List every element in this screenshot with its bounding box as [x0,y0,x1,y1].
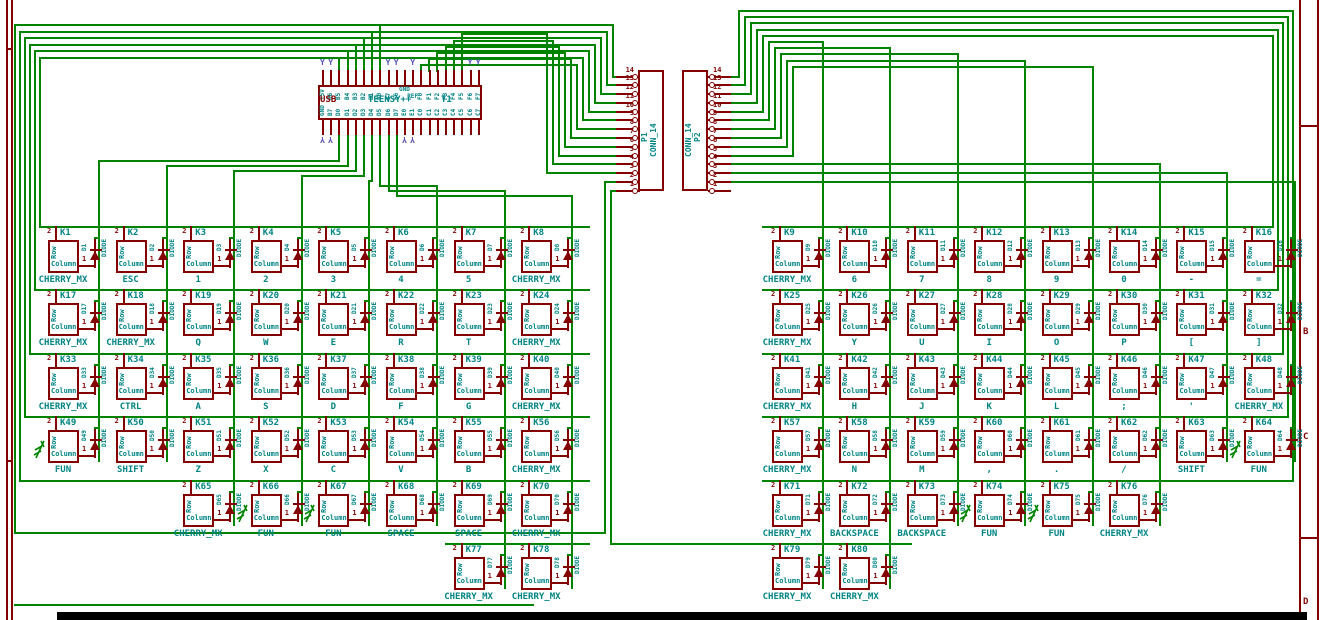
pin-number: 2 [1041,418,1045,425]
diode-D33[interactable] [90,378,100,387]
switch-ref: K58 [851,419,867,428]
connector-pin-number: 4 [713,154,729,161]
switch-ref: K53 [330,419,346,428]
wire-segment [297,364,303,366]
diode-D42[interactable] [881,378,891,387]
wire-segment [39,57,41,229]
switch-ref: K73 [919,483,935,492]
switch-pin-name-row: Row [977,244,984,259]
diode-value: DIODE [1298,362,1304,384]
no-connect-icon: Y [394,59,399,67]
switch-pin-name-column: Column [389,324,414,331]
switch-pin-name-row: Row [977,307,984,322]
switch-value: = [1219,276,1299,285]
diode-D13[interactable] [1084,251,1094,260]
pin-number: 2 [838,355,842,362]
switch-pin-name-row: Row [775,244,782,259]
diode-D28[interactable] [1016,314,1026,323]
teensy-pin [322,118,324,135]
diode-D30[interactable] [1151,314,1161,323]
diode-D1[interactable] [90,251,100,260]
switch-pin-name-row: Row [1045,244,1052,259]
switch-pin-name-row: Row [254,371,261,386]
diode-value: DIODE [237,298,243,320]
teensy-pin [437,70,439,87]
diode-D57[interactable] [814,441,824,450]
switch-ref: K47 [1188,356,1204,365]
diode-value: DIODE [575,489,581,511]
pin-number: 2 [973,355,977,362]
frame-line [6,0,8,620]
wire-segment [729,111,764,113]
diode-D66[interactable] [293,505,303,514]
diode-value: DIODE [508,298,514,320]
diode-D15[interactable] [1218,251,1228,260]
switch-pin-name-row: Row [524,561,531,576]
wire-segment [500,300,506,302]
wire-segment [953,364,959,366]
diode-D59[interactable] [949,441,959,450]
diode-value: DIODE [1096,235,1102,257]
switch-pin-name-row: Row [457,244,464,259]
switch-value: CHERRY_MX [1219,403,1299,412]
diode-D46[interactable] [1151,378,1161,387]
diode-D71[interactable] [814,505,824,514]
diode-D31[interactable] [1218,314,1228,323]
switch-ref: K23 [466,292,482,301]
diode-value: DIODE [826,552,832,574]
wire-segment [567,554,573,556]
diode-D40[interactable] [563,378,573,387]
diode-ref: D63 [1210,426,1216,441]
pin-number: 2 [1175,418,1179,425]
diode-D58[interactable] [881,441,891,450]
no-connect-icon: Y [410,59,415,67]
switch-pin-name-row: Row [119,307,126,322]
pin-number: 2 [115,418,119,425]
switch-pin-name-row: Row [457,434,464,449]
switch-value: FUN [1219,466,1299,475]
diode-value: DIODE [575,235,581,257]
diode-D5[interactable] [360,251,370,260]
switch-ref: K20 [263,292,279,301]
pin-number: 1 [555,446,559,453]
diode-ref: D26 [873,299,879,314]
diode-ref: D21 [352,299,358,314]
switch-ref: K41 [784,356,800,365]
wire-segment [428,58,572,60]
diode-D22[interactable] [428,314,438,323]
pin-number: 2 [47,291,51,298]
pin-number: 2 [520,545,524,552]
connector-pin-number: 2 [618,172,634,179]
switch-ref: K9 [784,229,795,238]
diode-value: DIODE [1028,425,1034,447]
wire-segment [738,10,740,78]
pin-number: 2 [453,545,457,552]
teensy-pin-name: F7 [476,87,482,100]
switch-pin-name-row: Row [457,307,464,322]
wire-segment [34,50,36,291]
pin-number: 2 [973,291,977,298]
diode-D54[interactable] [428,441,438,450]
diode-D6[interactable] [428,251,438,260]
diode-value: DIODE [1096,489,1102,511]
diode-D10[interactable] [881,251,891,260]
diode-ref: D34 [150,363,156,378]
wire-segment [338,133,340,162]
switch-pin-name-row: Row [1112,434,1119,449]
diode-ref: D70 [555,490,561,505]
wire-segment [1290,300,1296,302]
connector-pin-number: 4 [618,154,634,161]
switch-pin-name-column: Column [1112,451,1137,458]
wire-segment [953,300,959,302]
diode-D63[interactable] [1218,441,1228,450]
teensy-pin [429,118,431,135]
diode-cathode-bar [949,439,961,441]
pin-number: 2 [1175,228,1179,235]
diode-D76[interactable] [1151,505,1161,514]
pin-number: 2 [838,418,842,425]
pin-number: 2 [838,228,842,235]
pin-number: 2 [317,418,321,425]
switch-pin-name-row: Row [186,307,193,322]
diode-D52[interactable] [293,441,303,450]
diode-ref: D79 [806,553,812,568]
switch-ref: K16 [1256,229,1272,238]
diode-D62[interactable] [1151,441,1161,450]
switch-pin-name-row: Row [1112,244,1119,259]
connector-pin-number: 13 [618,75,634,82]
diode-D61[interactable] [1084,441,1094,450]
switch-ref: K21 [330,292,346,301]
wire-entry-arrow-icon [1027,502,1041,524]
diode-D7[interactable] [496,251,506,260]
switch-pin-name-column: Column [775,451,800,458]
pin-number: 2 [1243,355,1247,362]
switch-pin-name-row: Row [775,561,782,576]
diode-D48[interactable] [1286,378,1296,387]
diode-D77[interactable] [496,568,506,577]
diode-D47[interactable] [1218,378,1228,387]
diode-ref: D69 [488,490,494,505]
teensy-pin [338,118,340,135]
diode-D44[interactable] [1016,378,1026,387]
diode-value: DIODE [893,552,899,574]
pin-number: 2 [906,482,910,489]
diode-D37[interactable] [360,378,370,387]
switch-pin-name-column: Column [254,515,279,522]
wire-segment [461,33,463,72]
pin-number: 2 [250,418,254,425]
pin-number: 1 [352,383,356,390]
diode-D34[interactable] [158,378,168,387]
diode-D14[interactable] [1151,251,1161,260]
teensy-pin [338,70,340,87]
connector-pin-number: 7 [618,128,634,135]
wire-segment [768,41,824,43]
teensy-pin-name: C1 [427,103,433,116]
switch-ref: K71 [784,483,800,492]
diode-value: DIODE [575,552,581,574]
diode-cathode-bar [293,439,305,441]
diode-D9[interactable] [814,251,824,260]
diode-D70[interactable] [563,505,573,514]
wire-segment [364,427,370,429]
wire-segment [94,300,100,302]
diode-value: DIODE [102,298,108,320]
diode-D78[interactable] [563,568,573,577]
diode-D73[interactable] [949,505,959,514]
switch-ref: K13 [1054,229,1070,238]
diode-D45[interactable] [1084,378,1094,387]
pin-number: 1 [488,446,492,453]
switch-pin-name-row: Row [775,307,782,322]
wire-segment [567,427,573,429]
pin-number: 1 [488,383,492,390]
diode-cathode-bar [158,249,170,251]
diode-value: DIODE [1163,235,1169,257]
switch-pin-name-column: Column [910,451,935,458]
wire-segment [818,554,824,556]
diode-value: DIODE [1096,362,1102,384]
wire-segment [885,364,891,366]
diode-D56[interactable] [563,441,573,450]
connector-pin-number: 7 [713,128,729,135]
switch-ref: K27 [919,292,935,301]
diode-D21[interactable] [360,314,370,323]
wire-segment [500,554,506,556]
pin-number: 2 [115,228,119,235]
pin-number: 1 [1143,510,1147,517]
diode-D20[interactable] [293,314,303,323]
switch-pin-name-row: Row [1179,307,1186,322]
switch-value: CHERRY_MX [1084,530,1164,539]
diode-D74[interactable] [1016,505,1026,514]
switch-ref: K31 [1188,292,1204,301]
wire-segment [558,46,560,157]
pin-number: 2 [520,418,524,425]
wire-segment [885,554,891,556]
wire-segment [500,237,506,239]
diode-value: DIODE [1230,298,1236,320]
diode-D55[interactable] [496,441,506,450]
wire-segment [1020,491,1026,493]
wire-segment [786,60,788,148]
wire-segment [24,37,26,418]
diode-D35[interactable] [225,378,235,387]
wire-segment [297,237,303,239]
pin-number: 1 [1008,446,1012,453]
diode-cathode-bar [496,249,508,251]
pin-number: 2 [115,291,119,298]
diode-D2[interactable] [158,251,168,260]
pin-number: 2 [250,482,254,489]
diode-ref: D22 [420,299,426,314]
diode-D80[interactable] [881,568,891,577]
switch-pin-name-column: Column [1247,324,1272,331]
connector-pin-number: 10 [618,102,634,109]
diode-D32[interactable] [1286,314,1296,323]
pin-number: 1 [806,573,810,580]
diode-D60[interactable] [1016,441,1026,450]
switch-pin-name-column: Column [775,324,800,331]
diode-D64[interactable] [1286,441,1296,450]
teensy-pin [429,70,431,87]
diode-ref: D38 [420,363,426,378]
wire-segment [1155,491,1161,493]
switch-pin-name-row: Row [51,371,58,386]
switch-pin-name-row: Row [389,244,396,259]
wire-segment [818,237,824,239]
wire-segment [546,33,548,174]
diode-D12[interactable] [1016,251,1026,260]
diode-D3[interactable] [225,251,235,260]
switch-pin-name-row: Row [524,371,531,386]
diode-D68[interactable] [428,505,438,514]
wire-segment [94,364,100,366]
pin-number: 2 [1041,291,1045,298]
diode-D29[interactable] [1084,314,1094,323]
switch-ref: K39 [466,356,482,365]
diode-value: DIODE [1230,362,1236,384]
no-connect-icon: Y [410,135,415,143]
pin-number: 1 [488,573,492,580]
pin-number: 2 [317,482,321,489]
diode-D39[interactable] [496,378,506,387]
diode-D18[interactable] [158,314,168,323]
switch-pin-name-column: Column [842,515,867,522]
wire-segment [729,172,1228,174]
diode-D69[interactable] [496,505,506,514]
frame-tick [6,48,13,50]
switch-value: CHERRY_MX [496,530,576,539]
diode-D19[interactable] [225,314,235,323]
wire-segment [1020,364,1026,366]
diode-D24[interactable] [563,314,573,323]
wire-segment [388,190,506,192]
pin-number: 1 [285,383,289,390]
diode-value: DIODE [893,489,899,511]
switch-ref: K7 [466,229,477,238]
diode-D43[interactable] [949,378,959,387]
diode-value: DIODE [1096,298,1102,320]
teensy-pin [388,70,390,87]
wire-segment [792,66,1094,68]
diode-D75[interactable] [1084,505,1094,514]
teensy-pin [388,118,390,135]
no-connect-icon: Y [476,59,481,67]
pin-number: 1 [488,256,492,263]
switch-pin-name-column: Column [321,515,346,522]
wire-segment [379,133,381,187]
pin-number: 1 [150,319,154,326]
switch-ref: K61 [1054,419,1070,428]
diode-value: DIODE [372,425,378,447]
diode-D11[interactable] [949,251,959,260]
switch-value: ] [1219,339,1299,348]
wire-segment [744,16,746,86]
switch-ref: K44 [986,356,1002,365]
wire-segment [432,300,438,302]
switch-pin-name-row: Row [389,498,396,513]
diode-value: DIODE [102,425,108,447]
diode-D4[interactable] [293,251,303,260]
diode-D50[interactable] [158,441,168,450]
switch-pin-name-row: Row [51,244,58,259]
diode-D51[interactable] [225,441,235,450]
pin-number: 1 [1210,256,1214,263]
switch-ref: K49 [60,419,76,428]
switch-pin-name-column: Column [977,451,1002,458]
pin-number: 2 [1108,355,1112,362]
connector-pin-number: 11 [618,93,634,100]
wire-segment [1155,300,1161,302]
wire-segment [774,47,776,130]
wire-segment [570,137,618,139]
pin-number: 1 [352,446,356,453]
pin-number: 2 [1108,291,1112,298]
teensy-pin-name: C6 [468,103,474,116]
diode-D27[interactable] [949,314,959,323]
diode-value: DIODE [826,425,832,447]
switch-ref: K37 [330,356,346,365]
diode-D79[interactable] [814,568,824,577]
diode-ref: D5 [352,236,358,251]
diode-D41[interactable] [814,378,824,387]
diode-D17[interactable] [90,314,100,323]
diode-D38[interactable] [428,378,438,387]
diode-D8[interactable] [563,251,573,260]
teensy-pin [371,118,373,135]
diode-D36[interactable] [293,378,303,387]
switch-pin-name-column: Column [457,578,482,585]
no-connect-icon: Y [386,59,391,67]
switch-pin-name-column: Column [1179,451,1204,458]
diode-D23[interactable] [496,314,506,323]
wire-segment [744,16,1289,18]
diode-D25[interactable] [814,314,824,323]
wire-segment [1287,16,1289,418]
diode-D53[interactable] [360,441,370,450]
wire-segment [546,172,618,174]
wire-segment [98,160,100,462]
wire-segment [729,102,758,104]
switch-pin-name-row: Row [321,244,328,259]
connector-pin-number: 12 [618,84,634,91]
teensy-pin-name: C4 [451,103,457,116]
diode-ref: D50 [150,426,156,441]
pin-number: 1 [1076,256,1080,263]
pin-number: 1 [806,256,810,263]
wire-segment [953,491,959,493]
switch-pin-name-row: Row [910,434,917,449]
diode-ref: D27 [941,299,947,314]
diode-value: DIODE [237,362,243,384]
pin-number: 2 [182,355,186,362]
wire-segment [229,237,235,239]
diode-D49[interactable] [90,441,100,450]
diode-D26[interactable] [881,314,891,323]
wire-segment [1024,60,1026,526]
diode-ref: D53 [352,426,358,441]
diode-D67[interactable] [360,505,370,514]
diode-D16[interactable] [1286,251,1296,260]
diode-D65[interactable] [225,505,235,514]
diode-D72[interactable] [881,505,891,514]
switch-pin-name-column: Column [775,261,800,268]
